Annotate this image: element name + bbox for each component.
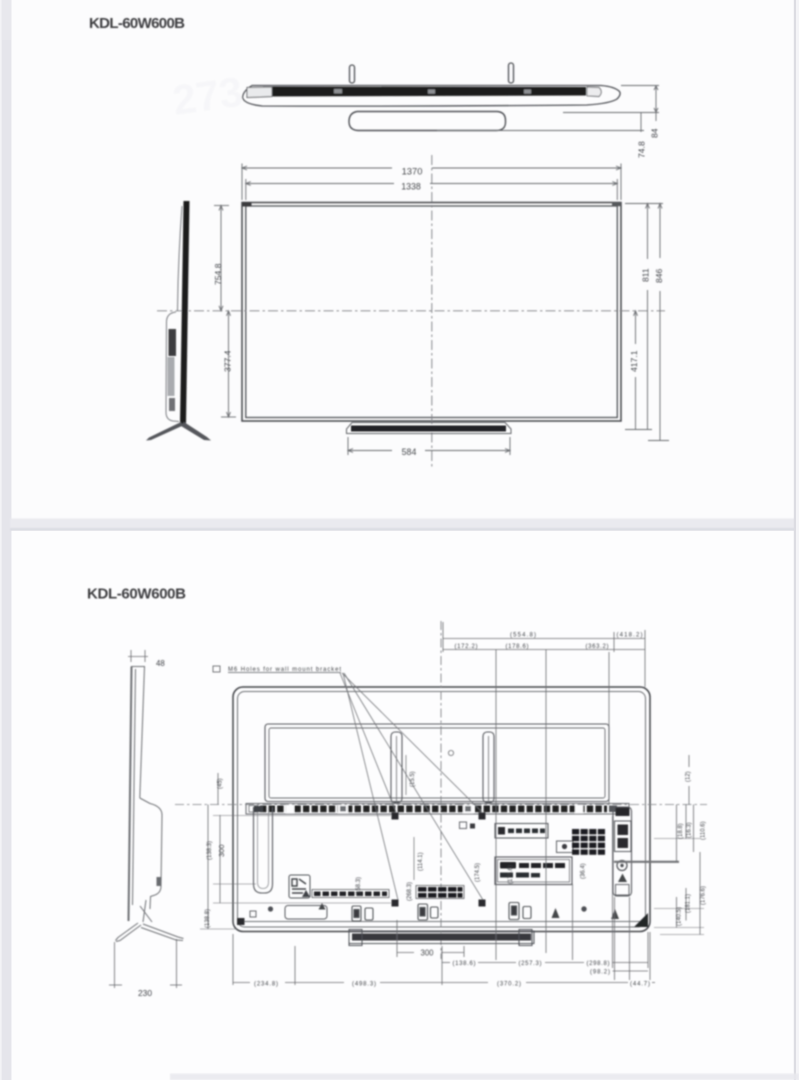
svg-text:1370: 1370 xyxy=(402,166,423,177)
svg-text:(257.3): (257.3) xyxy=(519,961,542,967)
svg-text:811: 811 xyxy=(641,268,651,282)
svg-text:(176.6): (176.6) xyxy=(508,865,514,884)
svg-text:(12): (12) xyxy=(686,771,692,782)
svg-text:300: 300 xyxy=(217,844,226,857)
svg-text:(363.2): (363.2) xyxy=(586,644,609,650)
svg-text:417.1: 417.1 xyxy=(629,350,639,372)
svg-text:377.4: 377.4 xyxy=(223,350,233,372)
svg-text:(370.2): (370.2) xyxy=(497,982,521,988)
svg-text:(234.8): (234.8) xyxy=(254,982,278,988)
svg-text:84: 84 xyxy=(650,128,660,138)
svg-text:(18.8): (18.8) xyxy=(678,823,684,839)
svg-text:(16.3): (16.3) xyxy=(687,822,693,838)
svg-text:74.8: 74.8 xyxy=(637,141,647,158)
svg-text:48: 48 xyxy=(156,659,165,668)
svg-text:273: 273 xyxy=(170,68,246,124)
svg-text:(36.4): (36.4) xyxy=(581,863,587,879)
svg-text:(140.5): (140.5) xyxy=(677,907,683,926)
svg-text:KDL-60W600B: KDL-60W600B xyxy=(87,586,186,603)
svg-text:754.8: 754.8 xyxy=(213,263,223,285)
svg-text:(181.1): (181.1) xyxy=(686,894,692,913)
svg-text:(138.6): (138.6) xyxy=(453,961,476,967)
svg-text:1338: 1338 xyxy=(401,182,421,192)
svg-text:(554.8): (554.8) xyxy=(510,633,536,639)
svg-text:(15.5): (15.5) xyxy=(410,771,416,787)
svg-text:(176.6): (176.6) xyxy=(701,886,707,905)
svg-text:(268.3): (268.3) xyxy=(407,882,413,901)
svg-text:(44.7): (44.7) xyxy=(630,982,650,988)
svg-text:KDL-60W600B: KDL-60W600B xyxy=(89,15,185,32)
svg-text:584: 584 xyxy=(402,447,417,457)
svg-text:846: 846 xyxy=(654,268,664,283)
svg-text:(138.8): (138.8) xyxy=(205,909,211,928)
svg-text:(114.1): (114.1) xyxy=(418,852,424,871)
svg-text:(98.2): (98.2) xyxy=(590,970,610,976)
svg-text:(174.5): (174.5) xyxy=(475,863,481,882)
svg-text:(45): (45) xyxy=(218,778,224,789)
svg-text:(158.3): (158.3) xyxy=(356,877,362,896)
svg-text:(172.2): (172.2) xyxy=(455,644,478,650)
svg-text:(110.6): (110.6) xyxy=(701,821,707,840)
svg-text:(138.3): (138.3) xyxy=(207,841,213,860)
svg-text:300: 300 xyxy=(420,949,434,958)
svg-text:(178.6): (178.6) xyxy=(506,644,529,650)
svg-text:(418.2): (418.2) xyxy=(617,633,643,639)
svg-text:(298.8): (298.8) xyxy=(587,961,610,967)
svg-text:230: 230 xyxy=(138,988,152,998)
svg-text:(498.3): (498.3) xyxy=(352,982,376,988)
svg-text:M6 Holes for wall mount bracke: M6 Holes for wall mount bracket xyxy=(228,667,341,673)
